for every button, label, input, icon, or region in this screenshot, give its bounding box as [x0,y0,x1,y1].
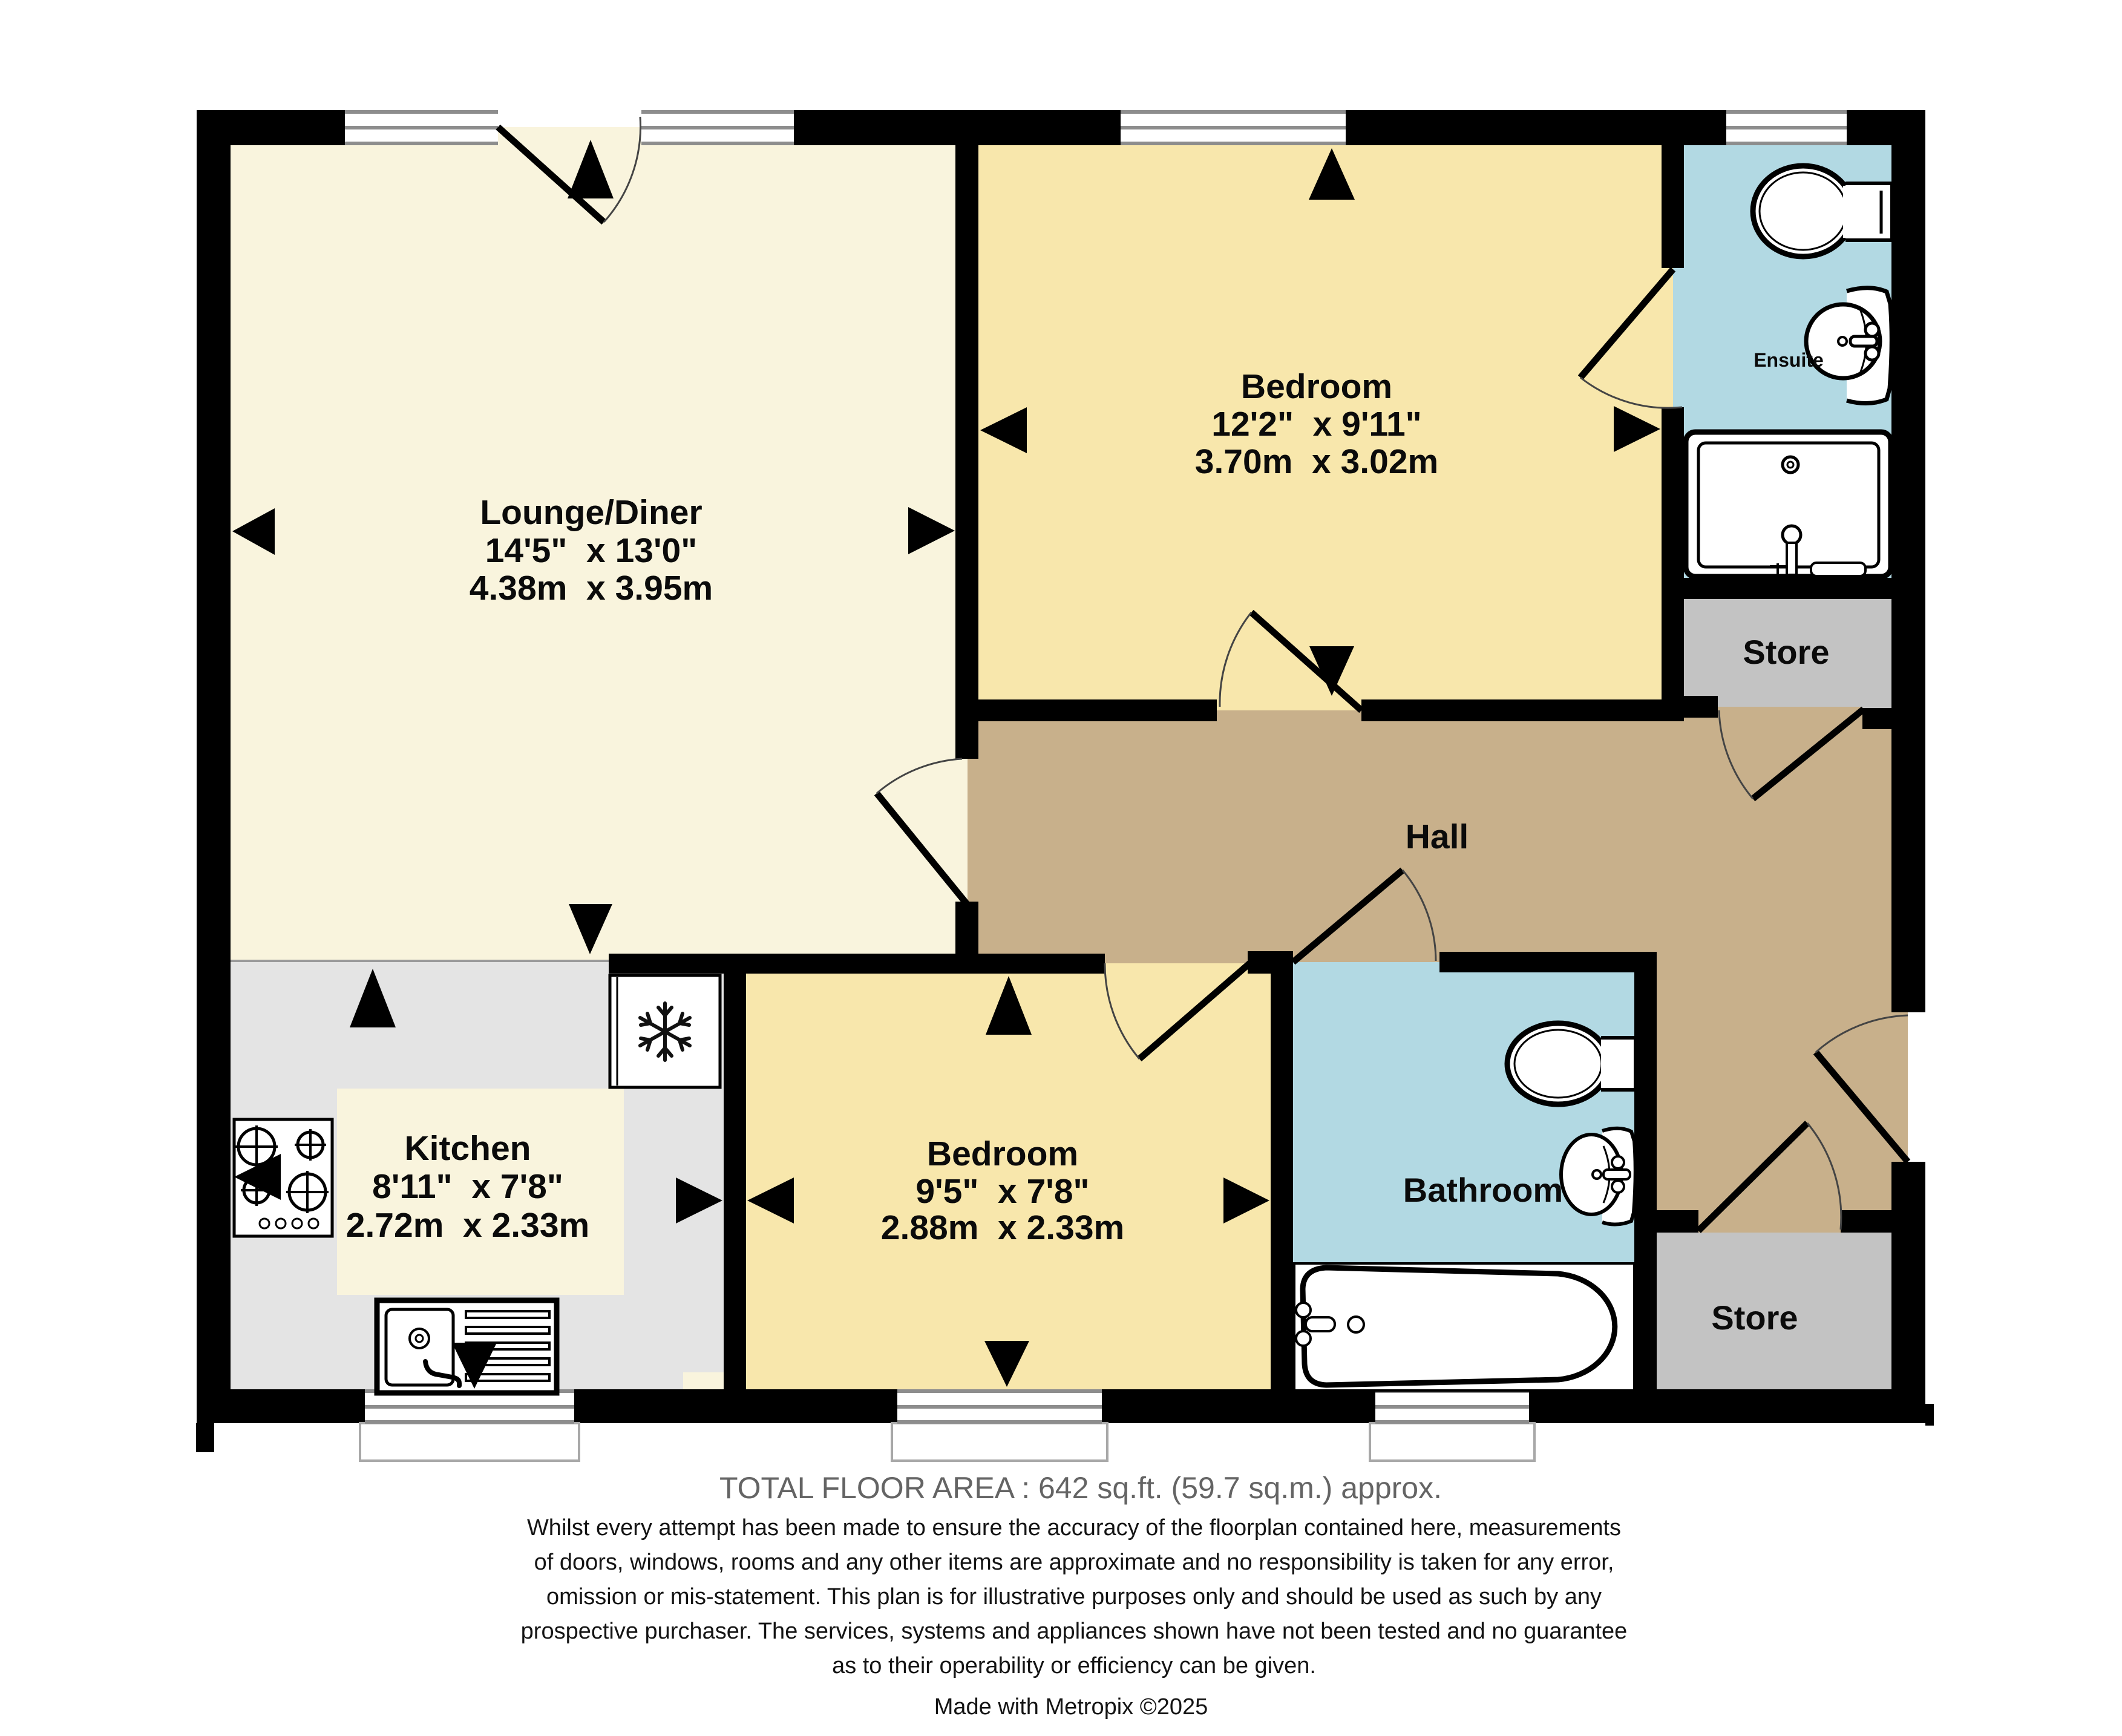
svg-text:Made with Metropix ©2025: Made with Metropix ©2025 [934,1694,1208,1720]
svg-text:TOTAL FLOOR AREA : 642 sq.ft.: TOTAL FLOOR AREA : 642 sq.ft. (59.7 sq.m… [719,1471,1442,1505]
svg-text:Ensuite: Ensuite [1754,349,1824,371]
svg-text:12'2" x 9'11": 12'2" x 9'11" [1211,405,1421,444]
svg-text:Bedroom: Bedroom [927,1135,1078,1173]
svg-text:Kitchen: Kitchen [404,1129,531,1168]
svg-text:as to their operability or eff: as to their operability or efficiency ca… [832,1653,1316,1679]
svg-text:2.72m x 2.33m: 2.72m x 2.33m [346,1206,589,1245]
svg-text:14'5" x 13'0": 14'5" x 13'0" [485,531,698,570]
svg-text:Store: Store [1711,1299,1798,1337]
svg-text:Bathroom: Bathroom [1403,1171,1563,1209]
svg-text:Hall: Hall [1406,817,1469,856]
svg-text:8'11" x 7'8": 8'11" x 7'8" [372,1167,563,1206]
svg-text:Store: Store [1743,633,1829,671]
svg-text:3.70m x 3.02m: 3.70m x 3.02m [1195,442,1438,481]
svg-text:Lounge/Diner: Lounge/Diner [480,493,702,532]
svg-text:9'5" x 7'8": 9'5" x 7'8" [915,1172,1089,1211]
svg-text:prospective purchaser. The ser: prospective purchaser. The services, sys… [521,1619,1628,1644]
svg-text:4.38m x 3.95m: 4.38m x 3.95m [470,569,713,608]
svg-text:of doors, windows, rooms and a: of doors, windows, rooms and any other i… [534,1550,1614,1575]
svg-text:Whilst every attempt has been: Whilst every attempt has been made to en… [527,1515,1621,1541]
svg-text:2.88m x 2.33m: 2.88m x 2.33m [881,1208,1124,1247]
svg-text:omission or mis-statement. Thi: omission or mis-statement. This plan is … [546,1584,1602,1610]
svg-text:Bedroom: Bedroom [1241,367,1392,406]
